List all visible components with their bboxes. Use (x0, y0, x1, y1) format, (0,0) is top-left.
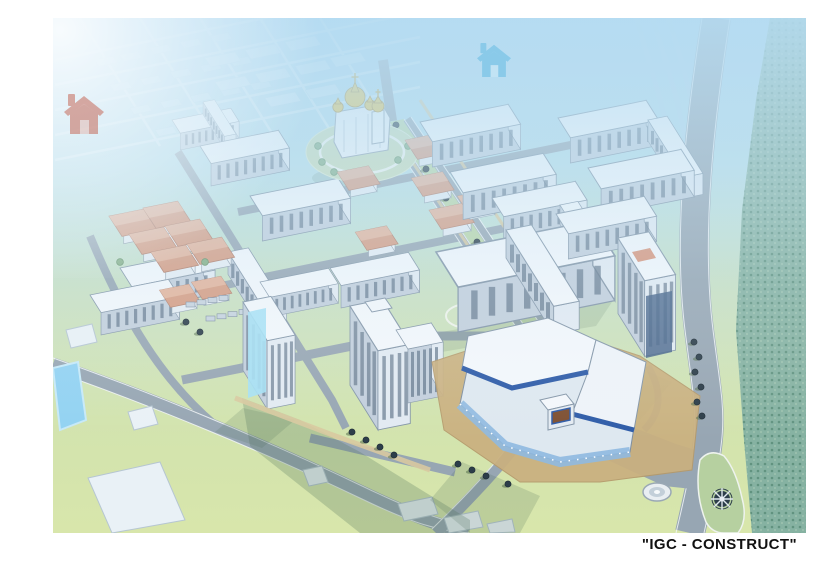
masterplan-illustration (0, 0, 827, 585)
caption-text: "IGC - CONSTRUCT" (642, 536, 797, 553)
masterplan-page: "IGC - CONSTRUCT" (0, 0, 827, 585)
fountain-icon (643, 483, 671, 501)
corner-haze (53, 18, 473, 278)
compass-rose-icon (711, 488, 733, 510)
